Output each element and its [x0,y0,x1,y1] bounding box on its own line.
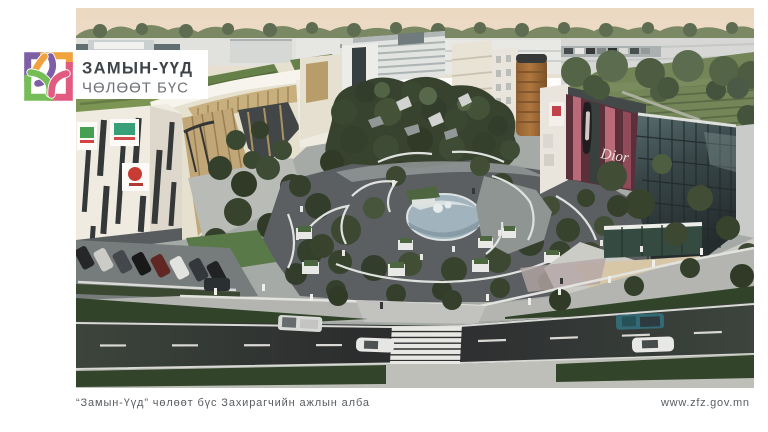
svg-text:“Замын-Үүд” чөлөөт бүс Захираг: “Замын-Үүд” чөлөөт бүс Захирагчийн ажлын… [76,397,370,409]
svg-text:ЗАМЫН-ҮҮД: ЗАМЫН-ҮҮД [82,60,192,78]
svg-text:ЧӨЛӨӨТ БҮС: ЧӨЛӨӨТ БҮС [82,80,188,97]
svg-text:www.zfz.gov.mn: www.zfz.gov.mn [660,397,749,409]
